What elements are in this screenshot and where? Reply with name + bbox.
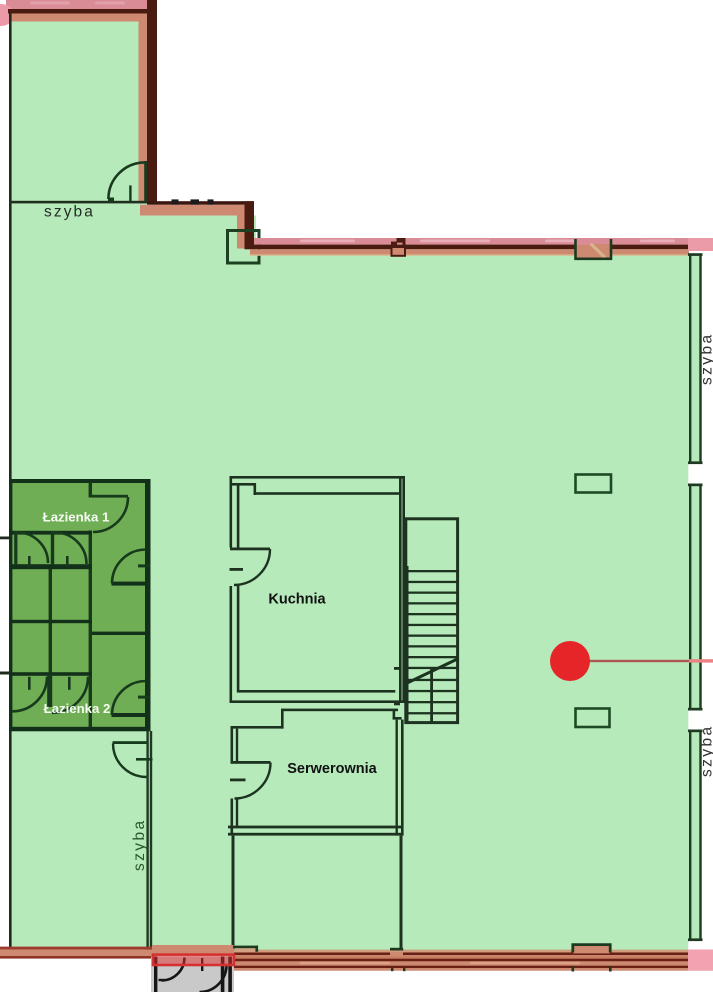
svg-text:Serwerownia: Serwerownia (287, 761, 377, 777)
svg-text:szyba: szyba (699, 725, 713, 778)
svg-text:Łazienka 1: Łazienka 1 (43, 510, 110, 525)
svg-text:Kuchnia: Kuchnia (268, 592, 326, 608)
svg-text:szyba: szyba (699, 333, 713, 386)
svg-text:szyba: szyba (131, 819, 148, 872)
svg-text:szyba: szyba (44, 204, 95, 221)
svg-text:Łazienka 2: Łazienka 2 (44, 701, 111, 716)
